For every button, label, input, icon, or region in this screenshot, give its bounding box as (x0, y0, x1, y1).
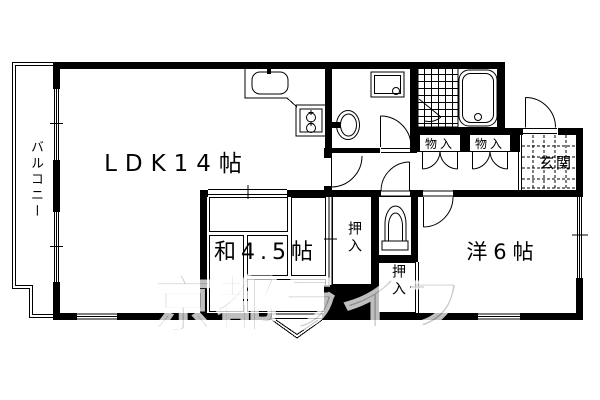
washroom-door-sill (381, 149, 410, 153)
western-right-window (572, 197, 588, 278)
label-balcony: バルコニー (26, 140, 45, 220)
kitchen-sink-icon (252, 68, 288, 94)
label-western-room: 洋6帖 (458, 236, 548, 266)
label-storage-2: 物入 (469, 135, 511, 152)
toilet-icon (382, 206, 408, 250)
kitchen-counter (245, 69, 297, 107)
label-storage-1: 物入 (419, 135, 461, 152)
western-bottom-window (478, 314, 520, 319)
bathroom-tile-icon (418, 68, 458, 127)
toilet-door-sill (381, 191, 410, 196)
washing-machine-icon (371, 72, 404, 97)
label-closet-japanese: 押入 (344, 221, 364, 255)
watermark-text: 京都ライフ (152, 254, 467, 344)
bathtub-icon (459, 70, 497, 126)
storage-1-doors (423, 151, 458, 169)
label-ldk: LDK14帖 (92, 144, 262, 178)
balcony-window-2 (50, 212, 63, 282)
floorplan-page: 京都ライフ バルコニー LDK14帖 和4.5帖 洋6帖 玄関 物入 物入 押入… (0, 0, 600, 400)
entrance-sill (523, 129, 557, 134)
toilet-door (381, 162, 410, 191)
balcony-window-1 (50, 89, 63, 160)
gas-stove-icon (296, 105, 326, 136)
entrance-door (526, 98, 556, 128)
label-japanese-room: 和4.5帖 (206, 234, 326, 266)
western-door-sill (423, 191, 453, 196)
toilet-room-outline (379, 197, 412, 256)
western-room-door (424, 197, 454, 227)
washbasin-icon (332, 111, 360, 140)
label-closet-western: 押入 (388, 264, 408, 298)
label-entrance: 玄関 (534, 152, 578, 173)
storage-2-doors (473, 151, 508, 169)
ldk-hall-door (332, 156, 363, 187)
washroom-door (381, 116, 412, 147)
ldk-bottom-window (77, 314, 117, 319)
washitsu-sliding-door (208, 185, 287, 199)
